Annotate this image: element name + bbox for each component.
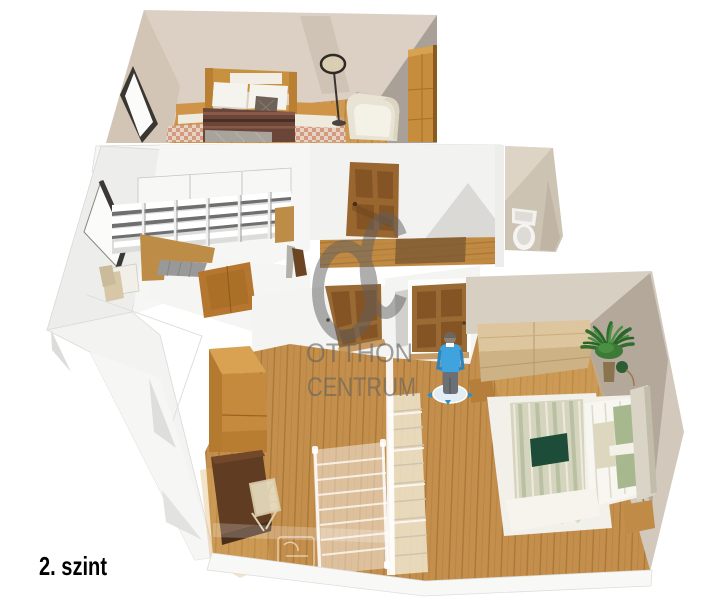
svg-text:OTTHON: OTTHON bbox=[306, 338, 413, 368]
svg-text:2. szint: 2. szint bbox=[39, 551, 107, 581]
svg-text:CENTRUM: CENTRUM bbox=[307, 372, 416, 402]
